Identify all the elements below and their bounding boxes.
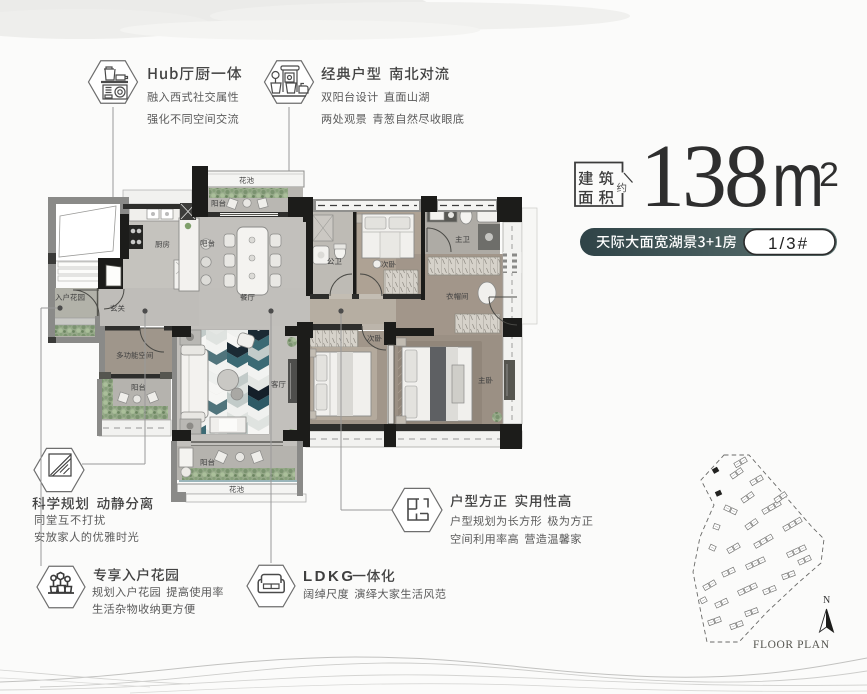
svg-text:2: 2 [819, 156, 839, 194]
svg-text:N: N [823, 595, 830, 606]
svg-text:138: 138 [640, 127, 766, 226]
svg-text:FLOOR PLAN: FLOOR PLAN [753, 639, 830, 651]
svg-text:LDKG: LDKG [303, 568, 356, 585]
svg-text:m: m [772, 138, 824, 223]
svg-text:1/3#: 1/3# [768, 234, 809, 253]
